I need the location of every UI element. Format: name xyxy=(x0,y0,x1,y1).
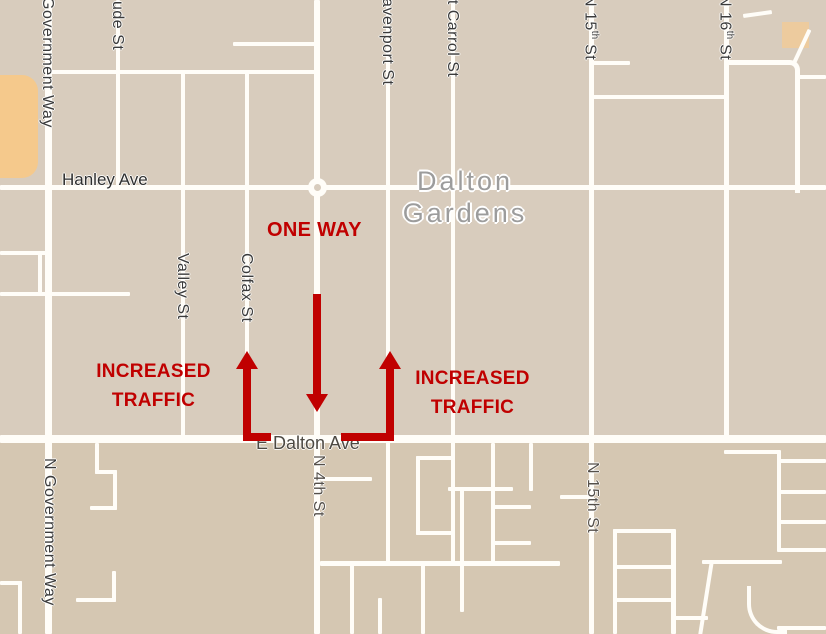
roundabout-center xyxy=(314,184,321,191)
increased-traffic-label-east: INCREASED TRAFFIC xyxy=(400,364,545,422)
street-label-mt-carrol-st: Mt Carrol St xyxy=(443,0,461,77)
road-residential xyxy=(491,505,531,509)
increased-traffic-label-west: INCREASED TRAFFIC xyxy=(81,357,226,415)
road-residential xyxy=(38,251,42,296)
increased-traffic-line2: TRAFFIC xyxy=(400,393,545,422)
road-residential xyxy=(491,443,495,565)
road-residential xyxy=(0,292,130,296)
street-label-n-government-way: N Government Way xyxy=(40,458,58,606)
road-residential xyxy=(460,487,464,612)
road-residential xyxy=(591,61,630,65)
road-residential xyxy=(448,487,513,491)
road-residential xyxy=(76,598,116,602)
street-label-text: St xyxy=(717,39,734,60)
road-residential xyxy=(529,443,533,491)
road-residential xyxy=(48,70,318,74)
increased-traffic-arrow-west-head xyxy=(236,351,258,369)
street-label-ude-st: ude St xyxy=(108,1,126,50)
road-residential xyxy=(777,626,826,630)
increased-traffic-line2: TRAFFIC xyxy=(81,386,226,415)
road-residential xyxy=(378,598,382,634)
one-way-label: ONE WAY xyxy=(267,219,362,242)
increased-traffic-line1: INCREASED xyxy=(400,364,545,393)
road-residential xyxy=(18,581,22,634)
road-corner-northeast xyxy=(726,60,800,193)
street-label-n-16th-st: N 16th St xyxy=(716,0,735,60)
dalton-gardens-map: Government Way ude St Valley St Colfax S… xyxy=(0,0,826,634)
road-residential xyxy=(613,598,675,602)
road-residential xyxy=(613,565,675,569)
road-residential xyxy=(416,531,455,535)
increased-traffic-arrow-west-vshaft xyxy=(243,368,251,441)
road-residential xyxy=(779,520,826,524)
road-residential xyxy=(350,561,354,634)
street-label-n-15th-st-north: N 15th St xyxy=(581,0,600,60)
road-residential xyxy=(90,506,117,510)
street-label-text: St xyxy=(582,39,599,60)
road-residential xyxy=(779,548,826,552)
road-residential xyxy=(777,450,781,552)
road-residential xyxy=(724,450,779,454)
road-residential xyxy=(797,75,826,79)
street-label-sup: th xyxy=(724,31,735,39)
place-label-line1: Dalton xyxy=(380,165,550,197)
street-label-n-15th-st-south: N 15th St xyxy=(583,462,601,533)
street-label-sup: th xyxy=(589,31,600,39)
street-label-text: N 15 xyxy=(582,0,599,31)
road-residential xyxy=(113,470,117,510)
increased-traffic-arrow-east-vshaft xyxy=(386,368,394,441)
road-mt-carrol-st xyxy=(451,0,455,565)
increased-traffic-line1: INCREASED xyxy=(81,357,226,386)
road-residential xyxy=(702,560,782,564)
street-label-n-4th-st: N 4th St xyxy=(309,455,327,517)
one-way-south-arrow-shaft xyxy=(313,294,321,395)
road-residential xyxy=(320,561,560,566)
road-residential xyxy=(416,456,420,535)
street-label-government-way: Government Way xyxy=(38,0,56,128)
one-way-south-arrow-head xyxy=(306,394,328,412)
street-label-hanley-ave: Hanley Ave xyxy=(62,170,148,190)
street-label-text: N 16 xyxy=(717,0,734,31)
road-residential xyxy=(421,561,425,634)
road-residential xyxy=(779,490,826,494)
road-residential xyxy=(416,456,455,460)
road-residential xyxy=(320,477,372,481)
street-label-valley-st: Valley St xyxy=(173,253,191,319)
road-residential xyxy=(613,529,675,533)
place-label-dalton-gardens: Dalton Gardens xyxy=(380,165,550,229)
road-residential xyxy=(779,459,826,463)
increased-traffic-arrow-east-head xyxy=(379,351,401,369)
place-label-line2: Gardens xyxy=(380,197,550,229)
street-label-davenport-st: Davenport St xyxy=(378,0,396,85)
road-residential xyxy=(591,95,726,99)
road-e-dalton-ave xyxy=(0,435,826,443)
street-label-colfax-st: Colfax St xyxy=(237,253,255,322)
road-residential xyxy=(743,10,772,18)
road-residential xyxy=(613,529,617,634)
road-residential xyxy=(491,541,531,545)
landuse-patch-west xyxy=(0,75,38,178)
road-residential xyxy=(233,42,318,46)
